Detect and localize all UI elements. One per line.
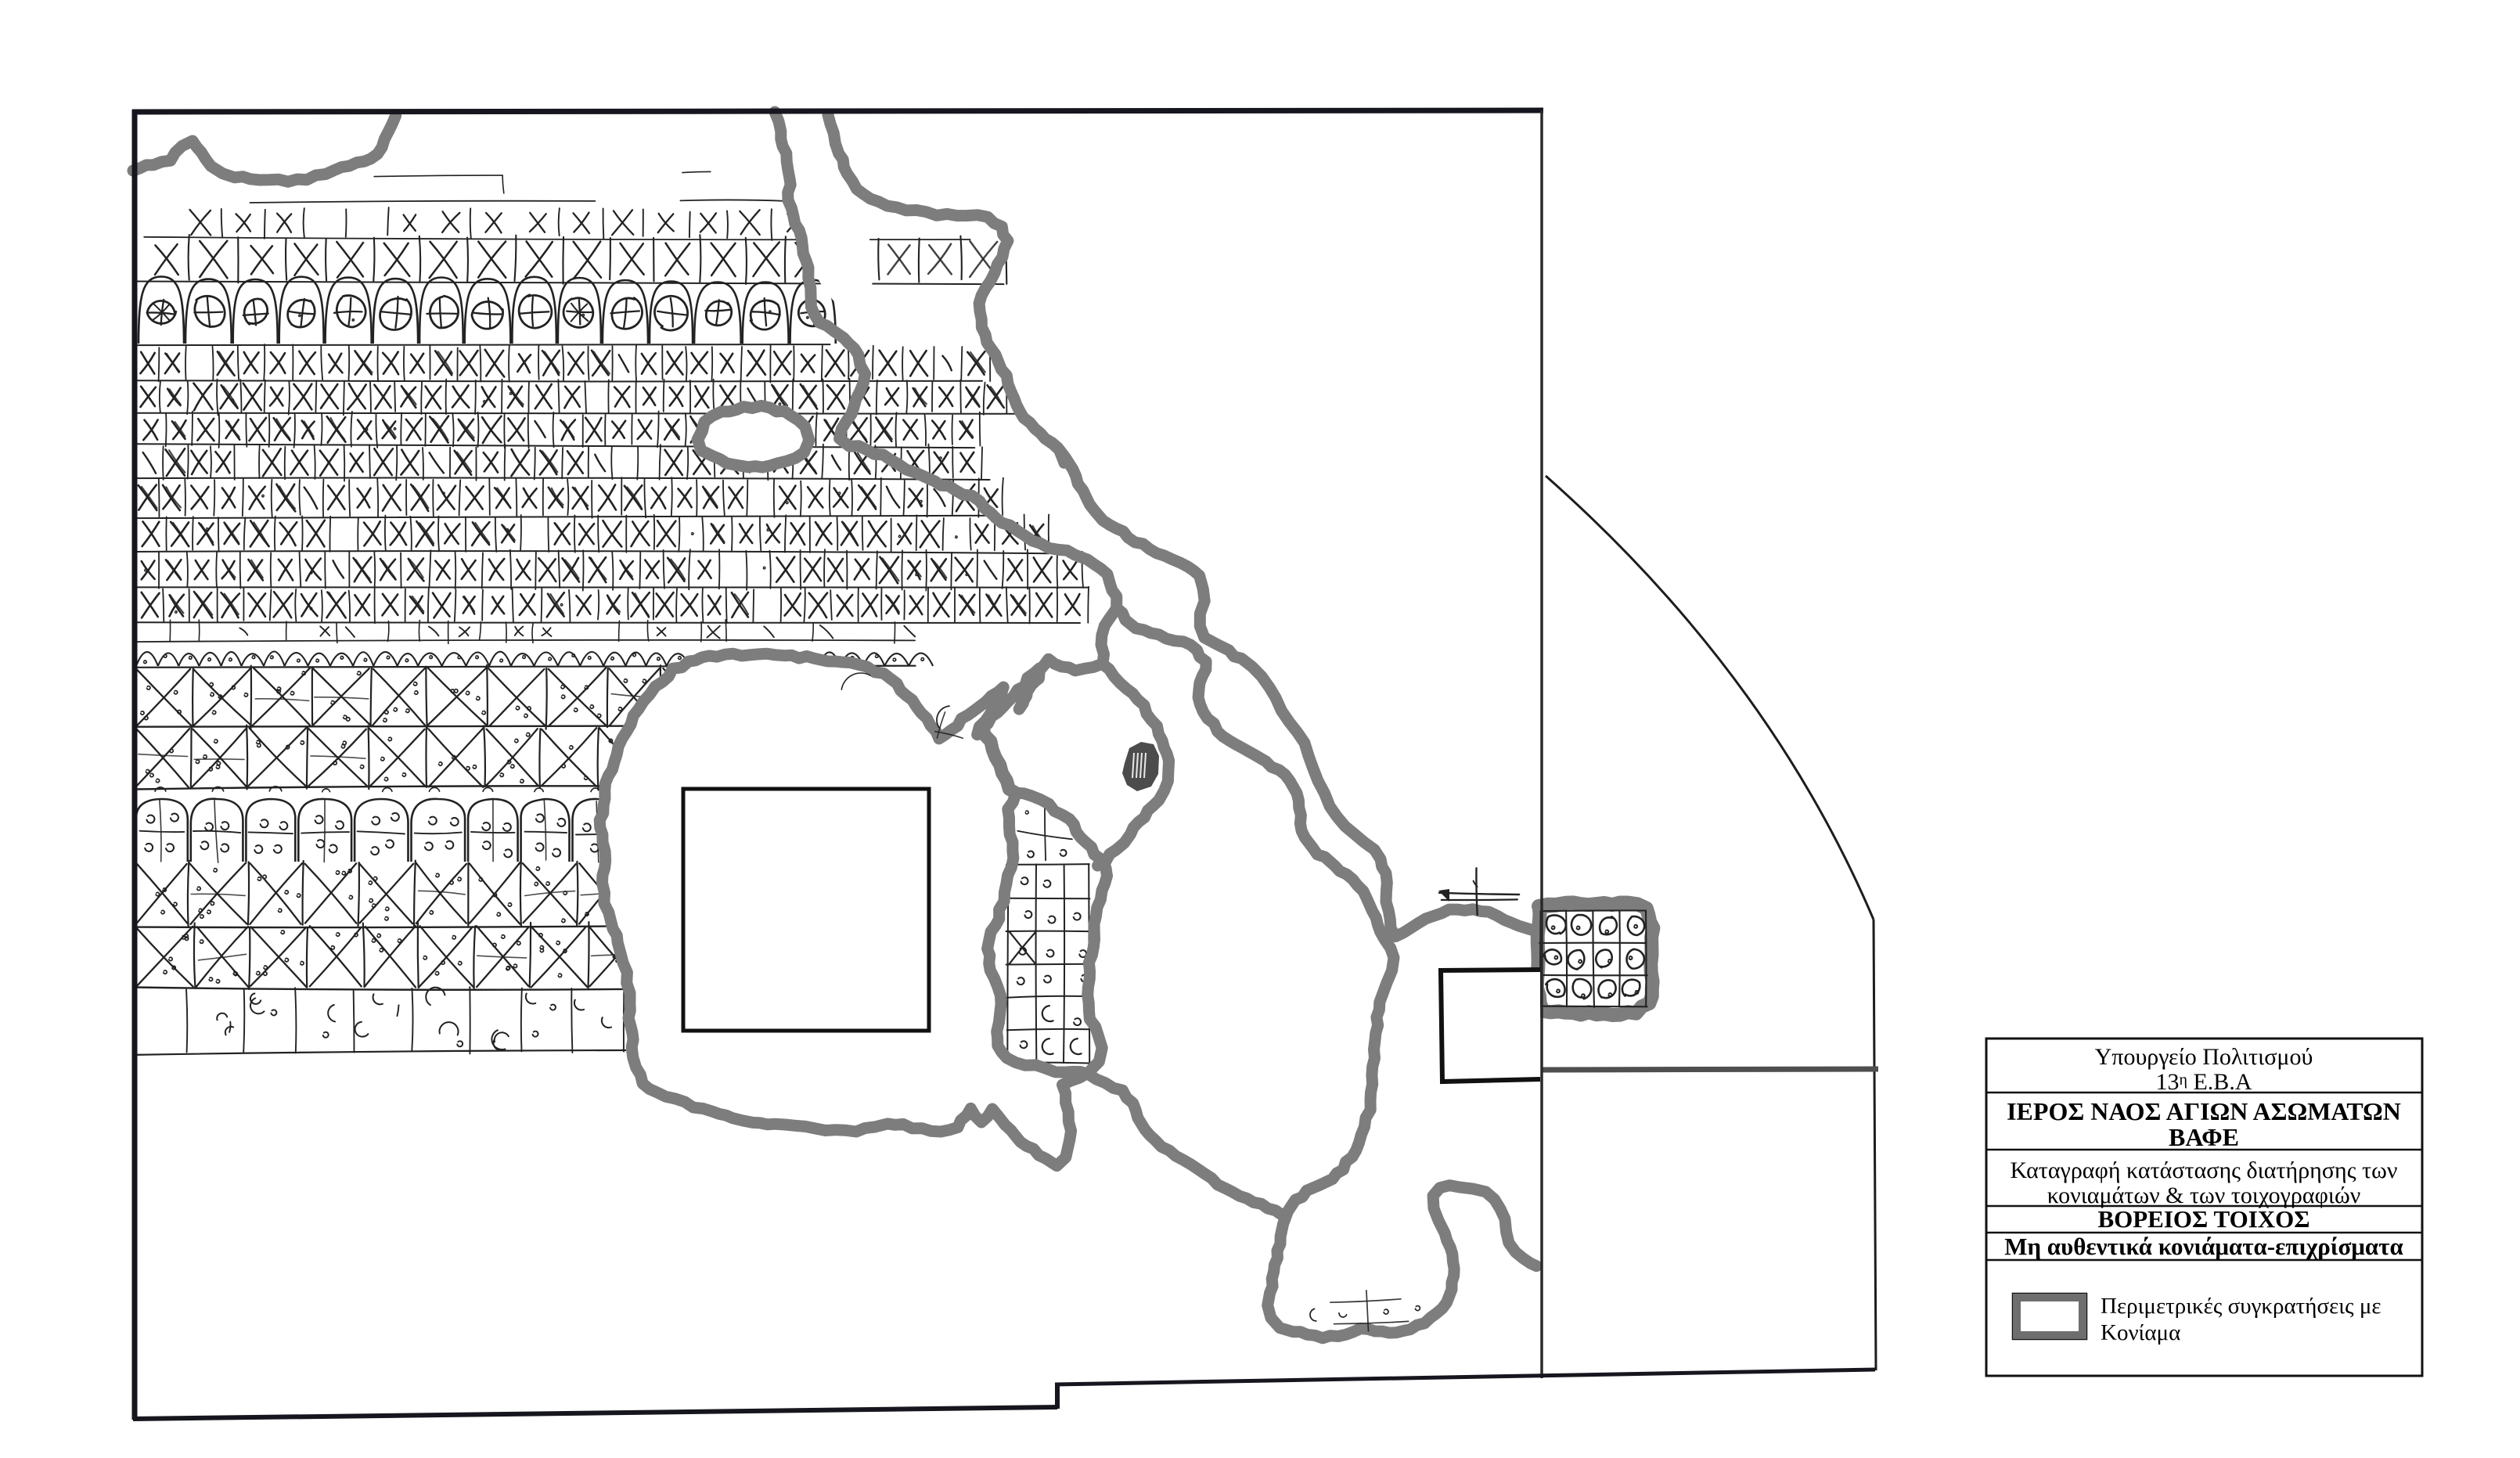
svg-text:ΙΕΡΟΣ ΝΑΟΣ ΑΓΙΩΝ ΑΣΩΜΑΤΩΝ: ΙΕΡΟΣ ΝΑΟΣ ΑΓΙΩΝ ΑΣΩΜΑΤΩΝ: [2007, 1097, 2401, 1125]
svg-text:Κονίαμα: Κονίαμα: [2101, 1320, 2180, 1345]
svg-text:Μη αυθεντικά κονιάματα-επιχρίσ: Μη αυθεντικά κονιάματα-επιχρίσματα: [2004, 1233, 2403, 1260]
svg-text:Καταγραφή κατάστασης διατήρηση: Καταγραφή κατάστασης διατήρησης των: [2011, 1157, 2398, 1183]
svg-text:ΒΟΡΕΙΟΣ ΤΟΙΧΟΣ: ΒΟΡΕΙΟΣ ΤΟΙΧΟΣ: [2097, 1205, 2309, 1233]
svg-text:Υπουργείο Πολιτισμού: Υπουργείο Πολιτισμού: [2095, 1044, 2313, 1070]
svg-text:Περιμετρικές συγκρατήσεις με: Περιμετρικές συγκρατήσεις με: [2101, 1294, 2381, 1319]
svg-text:13η Ε.Β.Α: 13η Ε.Β.Α: [2156, 1069, 2252, 1095]
svg-text:ΒΑΦΕ: ΒΑΦΕ: [2169, 1123, 2239, 1151]
